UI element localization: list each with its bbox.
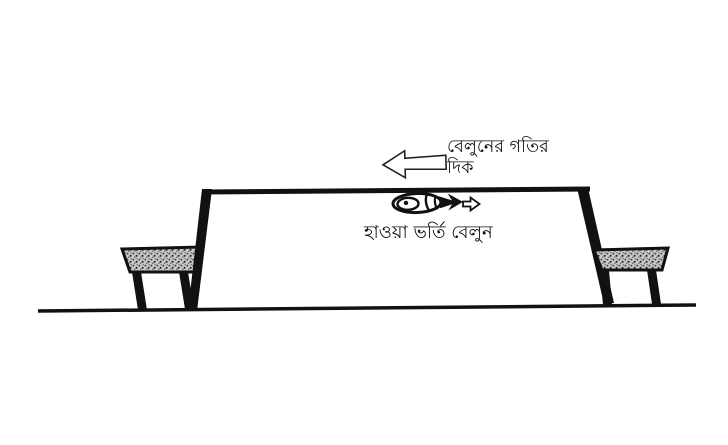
table-top xyxy=(204,189,590,192)
air-jet-arrow-icon xyxy=(463,198,480,211)
motion-direction-label-line2: দিক xyxy=(447,158,549,179)
left-bench xyxy=(122,247,201,310)
ground-line xyxy=(38,305,696,311)
motion-direction-label: বেলুনের গতির দিক xyxy=(447,137,549,179)
balloon-icon xyxy=(393,192,464,213)
left-bench-seat xyxy=(122,247,201,272)
right-bench-front-leg xyxy=(600,270,612,305)
motion-direction-arrow-icon xyxy=(383,150,447,179)
right-bench xyxy=(594,248,668,305)
motion-direction-label-line1: বেলুনের গতির xyxy=(447,137,549,158)
right-bench-back-leg xyxy=(647,270,661,304)
left-bench-front-leg xyxy=(132,272,147,310)
right-bench-seat xyxy=(594,248,668,270)
balloon-caption: হাওয়া ভর্তি বেলুন xyxy=(364,218,493,249)
diagram-canvas: বেলুনের গতির দিক হাওয়া ভর্তি বেলুন xyxy=(0,0,728,445)
